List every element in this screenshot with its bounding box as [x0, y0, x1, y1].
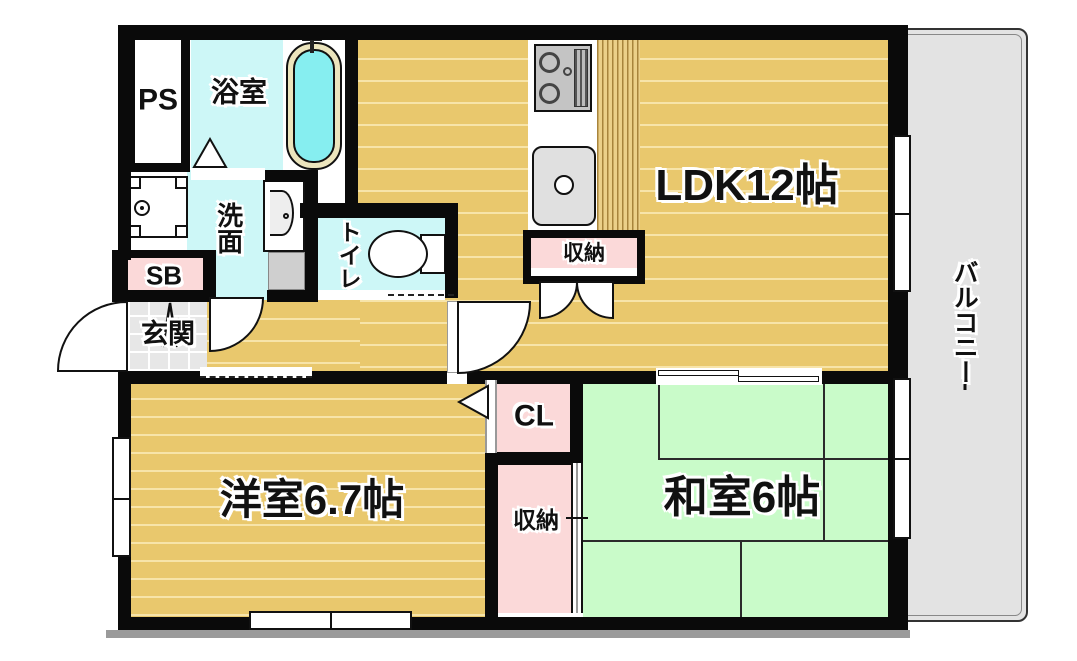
pan-corner: [175, 178, 186, 189]
basin-drain-icon: [283, 213, 289, 219]
drain-dot: [140, 206, 144, 210]
wall-washroom-hall-b: [267, 290, 318, 302]
window-western-left: [112, 437, 131, 557]
label-closet: CL: [514, 400, 554, 432]
sliding-panel: [658, 370, 739, 376]
window-ldk-balcony: [893, 135, 911, 292]
washer-pan: [128, 176, 188, 238]
sliding-panel: [738, 376, 819, 382]
hallway-floor: [205, 298, 360, 373]
label-kitchen-storage: 収納: [563, 243, 605, 265]
label-western-room: 洋室6.7帖: [220, 478, 404, 522]
pan-corner: [130, 225, 141, 236]
sliding-door-ldk-japanese: [656, 368, 822, 385]
label-washroom: 洗面: [214, 202, 241, 254]
pan-corner: [175, 225, 186, 236]
bath-threshold: [191, 168, 265, 180]
wall-sb-top: [112, 250, 210, 258]
wall-right: [888, 25, 908, 630]
window-tick: [895, 458, 909, 460]
closet-door: [485, 380, 497, 453]
wall-bath-ldk: [345, 25, 358, 210]
wall-toilet-right: [445, 203, 458, 298]
wall-bottom: [118, 617, 908, 630]
sliding-door-track: [576, 463, 578, 613]
window-japanese-balcony: [893, 378, 911, 539]
wall-shadow: [106, 630, 910, 638]
toilet-door-dashed: [388, 290, 454, 296]
bathtub: [286, 42, 342, 170]
wall-cl-bottom: [485, 452, 583, 465]
stove-burner-icon: [563, 67, 572, 76]
wall-sb-right: [203, 250, 216, 302]
sink-drain-icon: [554, 175, 574, 195]
stove-burner-icon: [539, 52, 560, 73]
kitchen-storage-ledge: [531, 268, 637, 276]
drain-icon: [134, 200, 150, 216]
wall-left-upper: [118, 25, 131, 260]
label-entrance: 玄関: [141, 320, 195, 348]
stove-burner-icon: [539, 83, 560, 104]
tatami-joint: [823, 382, 825, 540]
door-leaf-ldk: [447, 301, 458, 373]
wall-washroom-hall-a: [112, 290, 207, 302]
door-arc-entrance: [58, 302, 127, 371]
label-shoe-box: SB: [146, 262, 182, 289]
room-storage-bedroom: [497, 463, 573, 613]
pan-corner: [130, 178, 141, 189]
sliding-door-tick: [566, 517, 588, 519]
vanity-counter: [268, 252, 305, 290]
faucet-stem-icon: [310, 41, 314, 53]
label-toilet: トイレ: [336, 221, 360, 290]
toilet-bowl-icon: [368, 230, 428, 278]
tatami-joint: [583, 540, 890, 542]
tatami-joint: [740, 540, 742, 617]
window-western-bottom: [249, 611, 412, 630]
label-ldk: LDK12帖: [655, 163, 838, 209]
label-japanese-room: 和室6帖: [664, 475, 820, 521]
label-bathroom: 浴室: [211, 77, 267, 106]
window-tick: [330, 613, 332, 628]
wall-toilet-top: [300, 203, 458, 218]
entrance-step-dashed: [200, 367, 312, 378]
basin-icon: [270, 190, 294, 236]
stove-grill-icon: [574, 49, 588, 107]
label-ps: PS: [138, 84, 178, 116]
wall-top: [118, 25, 908, 40]
window-tick: [114, 498, 129, 500]
kitchen-sink: [532, 146, 596, 226]
window-tick: [895, 213, 909, 215]
gas-stove: [534, 44, 592, 112]
vanity-sink: [263, 175, 305, 252]
floor-plan: PS 浴室 洗面 トイレ SB 玄関 収納 LDK12帖 バルコニー CL 収納…: [0, 0, 1077, 661]
sliding-door-storage: [571, 463, 583, 613]
tatami-joint: [658, 458, 890, 460]
wall-washroom-toilet: [305, 170, 318, 298]
kitchen-counter-edge: [597, 40, 640, 233]
wall-western-right: [485, 452, 498, 617]
bathtub-water: [293, 49, 335, 163]
tatami-joint: [658, 382, 660, 460]
label-balcony: バルコニー: [951, 260, 977, 385]
label-bedroom-storage: 収納: [513, 508, 559, 532]
